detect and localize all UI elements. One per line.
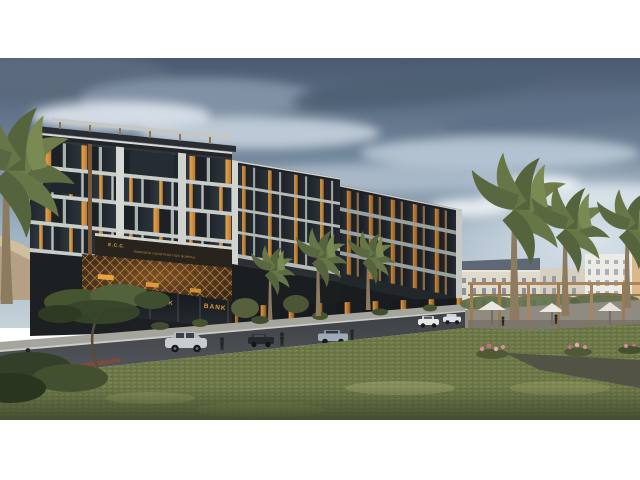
architectural-rendering-page: E.C.C. EMERSON CONSTRUCTION BUREAU BANK — [0, 0, 640, 480]
rendering-image: E.C.C. EMERSON CONSTRUCTION BUREAU BANK — [0, 58, 640, 420]
